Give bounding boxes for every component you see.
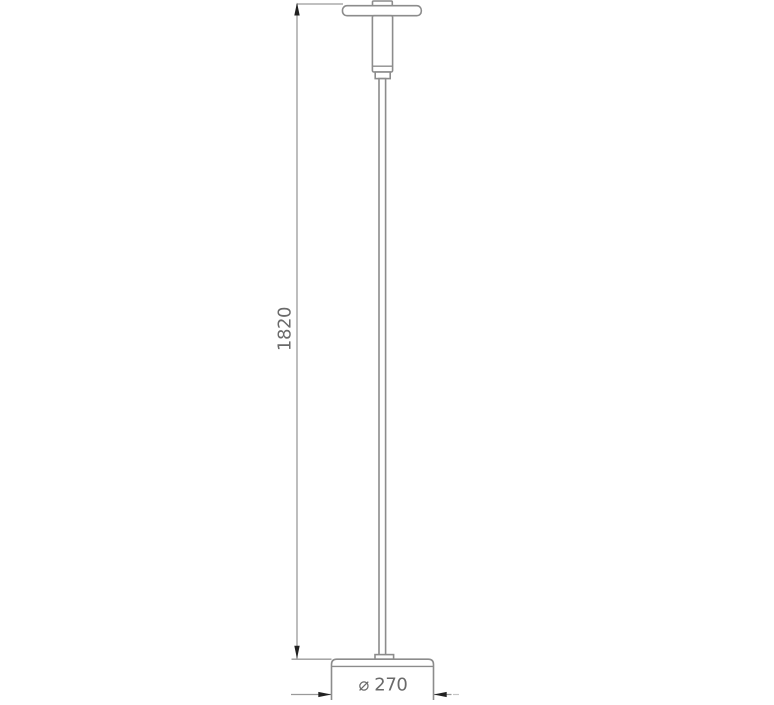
lamp-technical-drawing: 1820 ⌀ 270 [0,0,774,705]
canopy-body [372,16,392,72]
arrow-down-icon [294,646,299,659]
diameter-dimension-label: ⌀ 270 [359,675,408,696]
arrow-right-icon [318,692,331,697]
stem-rod [379,79,386,655]
arrow-left-icon [434,692,447,697]
height-dimension-label: 1820 [275,307,296,351]
ceiling-plate [343,6,422,16]
canopy-collar [375,72,390,79]
lamp-technical-drawing-page: 1820 ⌀ 270 [0,0,774,705]
lamp-outline [332,1,434,700]
height-dimension: 1820 [275,3,344,660]
